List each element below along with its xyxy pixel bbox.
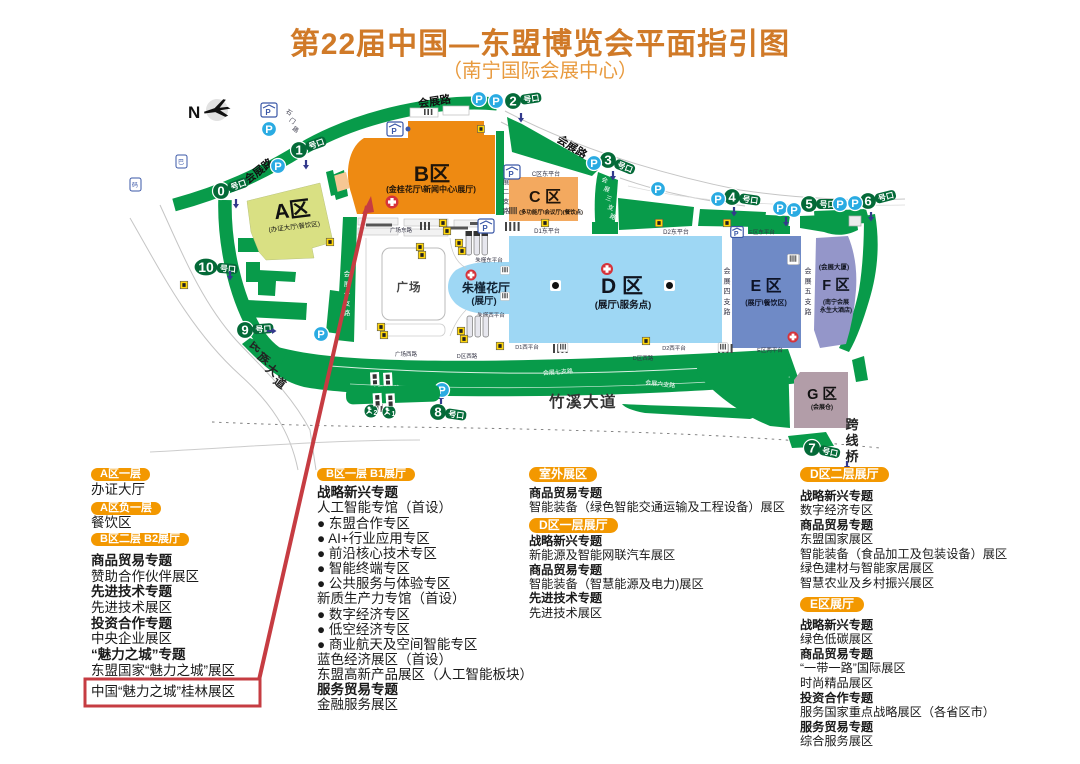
svg-text:线: 线 (845, 433, 858, 448)
svg-text:支: 支 (503, 196, 510, 205)
svg-text:6: 6 (864, 194, 871, 209)
svg-text:D1西平台: D1西平台 (515, 343, 539, 351)
svg-text:号口: 号口 (448, 410, 465, 421)
svg-text:P: P (265, 124, 273, 136)
svg-text:N: N (188, 103, 200, 122)
svg-text:D区西路: D区西路 (633, 354, 654, 362)
svg-text:E区东平台: E区东平台 (749, 228, 775, 236)
svg-text:P: P (274, 161, 282, 173)
svg-text:P: P (482, 224, 488, 233)
svg-text:4: 4 (728, 190, 736, 205)
svg-text:五: 五 (805, 288, 812, 296)
svg-text:P: P (391, 127, 397, 136)
svg-text:P: P (317, 329, 325, 341)
svg-text:码: 码 (132, 181, 138, 189)
svg-text:(展厅): (展厅) (471, 296, 496, 307)
svg-text:E 区: E 区 (750, 277, 781, 295)
svg-text:朱槿西平台: 朱槿西平台 (477, 311, 505, 319)
svg-text:3: 3 (604, 153, 611, 168)
svg-text:D1东平台: D1东平台 (534, 227, 560, 235)
svg-text:广场西路: 广场西路 (395, 350, 418, 358)
svg-text:(会展仓): (会展仓) (811, 403, 833, 411)
svg-text:朱槿东平台: 朱槿东平台 (475, 256, 503, 264)
svg-text:P: P (475, 94, 483, 106)
svg-text:跨: 跨 (845, 417, 859, 432)
svg-text:门: 门 (288, 116, 298, 126)
svg-text:P: P (714, 194, 722, 206)
svg-text:支: 支 (724, 297, 731, 306)
svg-text:石: 石 (284, 108, 293, 117)
svg-text:E区两平台: E区两平台 (757, 346, 783, 354)
svg-text:1: 1 (295, 143, 302, 158)
svg-text:7: 7 (808, 441, 815, 456)
svg-text:C区东平台: C区东平台 (532, 170, 560, 178)
svg-text:永生大酒店): 永生大酒店) (819, 306, 852, 314)
svg-text:P: P (508, 170, 514, 179)
svg-text:D 区: D 区 (601, 275, 643, 298)
svg-text:路: 路 (291, 125, 301, 135)
svg-text:10: 10 (198, 259, 214, 275)
svg-text:会: 会 (805, 266, 812, 275)
svg-text:0: 0 (217, 184, 224, 199)
svg-text:8: 8 (434, 405, 441, 420)
svg-text:路: 路 (724, 307, 731, 316)
svg-text:四: 四 (724, 288, 731, 296)
svg-text:广场东路: 广场东路 (390, 226, 413, 234)
svg-text:路: 路 (503, 206, 510, 215)
svg-text:P: P (836, 199, 844, 211)
svg-text:号口: 号口 (523, 93, 540, 104)
svg-text:P: P (776, 203, 784, 215)
svg-text:9: 9 (241, 323, 248, 338)
svg-text:(展厅\服务点): (展厅\服务点) (595, 299, 651, 311)
svg-text:P: P (734, 231, 739, 238)
svg-text:(多功能厅\会议厅)(餐饮点): (多功能厅\会议厅)(餐饮点) (519, 208, 583, 216)
svg-text:号口: 号口 (220, 264, 237, 274)
svg-text:竹溪大道: 竹溪大道 (548, 392, 617, 411)
svg-text:1: 1 (392, 411, 396, 418)
svg-text:2: 2 (509, 94, 516, 109)
svg-text:P: P (492, 96, 500, 108)
svg-text:号口: 号口 (821, 446, 839, 458)
svg-text:D区西路: D区西路 (457, 352, 478, 360)
svg-text:D2西平台: D2西平台 (662, 344, 686, 352)
svg-text:号口: 号口 (742, 195, 759, 206)
svg-text:号口: 号口 (877, 191, 895, 204)
svg-text:会: 会 (724, 266, 731, 275)
svg-text:A区: A区 (273, 197, 312, 224)
svg-text:支: 支 (805, 297, 812, 306)
svg-text:P: P (790, 205, 798, 217)
svg-text:G 区: G 区 (807, 386, 837, 403)
svg-text:(会展大厦): (会展大厦) (819, 262, 849, 271)
svg-text:P: P (654, 184, 662, 196)
svg-text:展: 展 (724, 277, 731, 285)
svg-text:号口: 号口 (255, 324, 272, 334)
svg-text:2: 2 (374, 410, 378, 417)
svg-text:广场: 广场 (397, 280, 422, 294)
svg-text:二: 二 (503, 189, 510, 196)
svg-text:(金桂花厅\新闻中心\展厅): (金桂花厅\新闻中心\展厅) (386, 184, 476, 194)
svg-text:P: P (590, 158, 598, 170)
svg-text:B区: B区 (414, 163, 450, 186)
svg-text:P: P (851, 198, 859, 210)
svg-text:5: 5 (805, 197, 812, 212)
svg-text:路: 路 (805, 307, 812, 316)
svg-text:D2东平台: D2东平台 (663, 228, 689, 236)
svg-text:(南宁会展: (南宁会展 (823, 298, 849, 306)
svg-text:展: 展 (805, 277, 812, 285)
svg-text:(展厅\餐饮区): (展厅\餐饮区) (745, 298, 787, 307)
svg-text:P: P (265, 108, 271, 117)
svg-text:C 区: C 区 (529, 188, 561, 206)
svg-text:F 区: F 区 (822, 277, 850, 294)
svg-text:巴: 巴 (178, 159, 184, 166)
